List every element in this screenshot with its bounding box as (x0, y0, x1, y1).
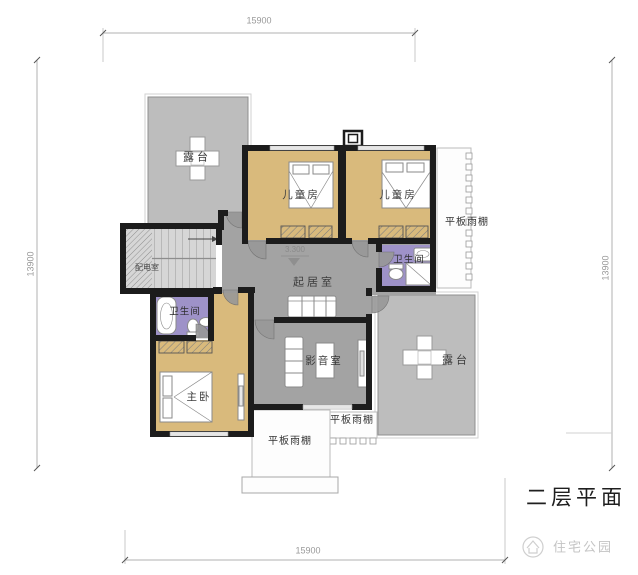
brand-house-icon (523, 537, 543, 557)
sofa-media (285, 337, 303, 387)
label-living-room: 起居室 (293, 278, 335, 289)
staircase (126, 229, 218, 288)
tv-board-master (238, 374, 244, 420)
label-bathroom-upper: 卫生间 (393, 256, 425, 266)
label-media-room: 影音室 (305, 357, 343, 368)
label-canopy-right: 平板雨棚 (445, 218, 489, 228)
label-children-room-right: 儿童房 (379, 191, 417, 202)
floor-plan-page: 露台 露台 儿童房 儿童房 卫生间 卫生间 起居室 影音室 主卧 配电室 平板雨… (0, 0, 638, 575)
label-canopy-bottom-right: 平板雨棚 (330, 416, 374, 426)
sofa-living (288, 296, 336, 317)
dimension-right: 13900 (602, 255, 611, 280)
dimension-bottom: 15900 (295, 547, 320, 556)
chimney (344, 131, 362, 146)
tv-cabinet-media (358, 340, 367, 387)
canopy-bottom-large (242, 410, 338, 493)
dimension-top: 15900 (246, 17, 271, 26)
label-canopy-bottom-left: 平板雨棚 (268, 437, 312, 447)
label-bathroom-lower: 卫生间 (169, 308, 201, 318)
dimension-left: 13900 (27, 251, 36, 276)
brand-logo-text: 住宅公园 (553, 541, 613, 554)
level-marker-value: 3.300 (285, 246, 305, 254)
label-terrace-top-left: 露台 (183, 153, 211, 164)
label-terrace-bottom-right: 露台 (442, 356, 470, 367)
drawing-title: 二层平面 (526, 488, 626, 509)
label-children-room-left: 儿童房 (282, 191, 320, 202)
label-master-bedroom: 主卧 (187, 393, 212, 404)
label-electrical-room: 配电室 (135, 264, 159, 272)
